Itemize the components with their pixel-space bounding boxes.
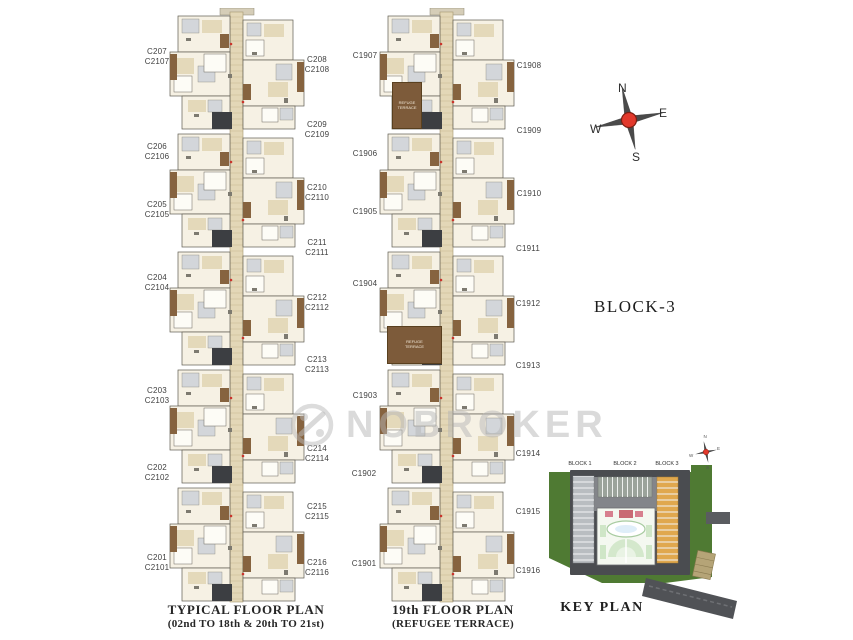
unit-label: C1906 <box>353 149 378 159</box>
refuge-plan-caption: 19th FLOOR PLAN (REFUGEE TERRACE) <box>392 602 514 630</box>
unit-label: C202 C2102 <box>145 463 170 483</box>
compass-rose-icon: N E W S <box>575 70 690 165</box>
unit-label: C212 C2112 <box>305 293 329 313</box>
key-plan-map: BLOCK 1 BLOCK 2 BLOCK 3 N E W S KEY PLAN <box>545 425 750 635</box>
compass-w-label: W <box>590 122 602 136</box>
unit-label: C207 C2107 <box>145 47 170 67</box>
caption-line1: 19th FLOOR PLAN <box>392 602 514 618</box>
unit-label: C1912 <box>516 299 541 309</box>
block-title: BLOCK-3 <box>594 297 676 317</box>
block1-label: BLOCK 1 <box>568 461 591 467</box>
unit-label: C205 C2105 <box>145 200 170 220</box>
unit-label: C208 C2108 <box>305 55 330 75</box>
key-plan-courtyard <box>597 508 655 565</box>
key-plan-block1 <box>573 476 594 563</box>
refuge-terrace-patch: REFUGE TERRACE <box>387 326 442 364</box>
caption-line2: (02nd TO 18th & 20th TO 21st) <box>168 618 325 630</box>
key-plan-compass-icon: N E W S <box>689 434 720 470</box>
block2-label: BLOCK 2 <box>613 461 636 467</box>
access-road <box>642 578 737 619</box>
unit-label: C1916 <box>516 566 541 576</box>
unit-label: C215 C2115 <box>305 502 329 522</box>
unit-label: C214 C2114 <box>305 444 329 464</box>
keyplan-compass-n: N <box>704 434 707 439</box>
unit-label: C1904 <box>353 279 378 289</box>
unit-label: C204 C2104 <box>145 273 170 293</box>
unit-label: C206 C2106 <box>145 142 170 162</box>
typical-floor-plan-drawing <box>168 8 306 606</box>
unit-label: C1915 <box>516 507 541 517</box>
refuge-terrace-note: REFUGE TERRACE <box>405 340 424 350</box>
unit-label: C1908 <box>517 61 542 71</box>
floor-plan-sheet: REFUGE TERRACE REFUGE TERRACE C207 C2107… <box>0 0 853 640</box>
key-plan-block3 <box>657 477 678 563</box>
unit-label: C1901 <box>352 559 377 569</box>
compass-n-label: N <box>618 81 627 95</box>
unit-label: C203 C2103 <box>145 386 170 406</box>
unit-label: C1910 <box>517 189 542 199</box>
unit-label: C1903 <box>353 391 378 401</box>
refuge-terrace-note: REFUGE TERRACE <box>397 101 416 111</box>
typical-plan-caption: TYPICAL FLOOR PLAN (02nd TO 18th & 20th … <box>168 602 325 630</box>
compass-s-label: S <box>632 150 640 164</box>
block3-label: BLOCK 3 <box>655 461 678 467</box>
refuge-terrace-patch: REFUGE TERRACE <box>392 82 422 129</box>
compass-e-label: E <box>659 106 667 120</box>
unit-label: C209 C2109 <box>305 120 330 140</box>
unit-label: C216 C2116 <box>305 558 329 578</box>
unit-label: C1913 <box>516 361 541 371</box>
unit-label: C1911 <box>516 244 540 254</box>
key-plan-title: KEY PLAN <box>560 600 643 615</box>
unit-label: C211 C2111 <box>305 238 328 258</box>
unit-label: C1914 <box>516 449 541 459</box>
keyplan-compass-w: W <box>689 453 694 458</box>
unit-label: C201 C2101 <box>145 553 170 573</box>
key-plan-block2 <box>598 477 652 497</box>
unit-label: C1907 <box>353 51 378 61</box>
caption-line1: TYPICAL FLOOR PLAN <box>168 602 325 618</box>
unit-label: C1905 <box>353 207 378 217</box>
unit-label: C213 C2113 <box>305 355 329 375</box>
keyplan-compass-e: E <box>717 446 720 451</box>
road-stub <box>706 512 730 524</box>
unit-label: C1909 <box>517 126 542 136</box>
unit-label: C210 C2110 <box>305 183 329 203</box>
unit-label: C1902 <box>352 469 377 479</box>
caption-line2: (REFUGEE TERRACE) <box>392 618 514 630</box>
keyplan-compass-s: S <box>706 465 709 470</box>
